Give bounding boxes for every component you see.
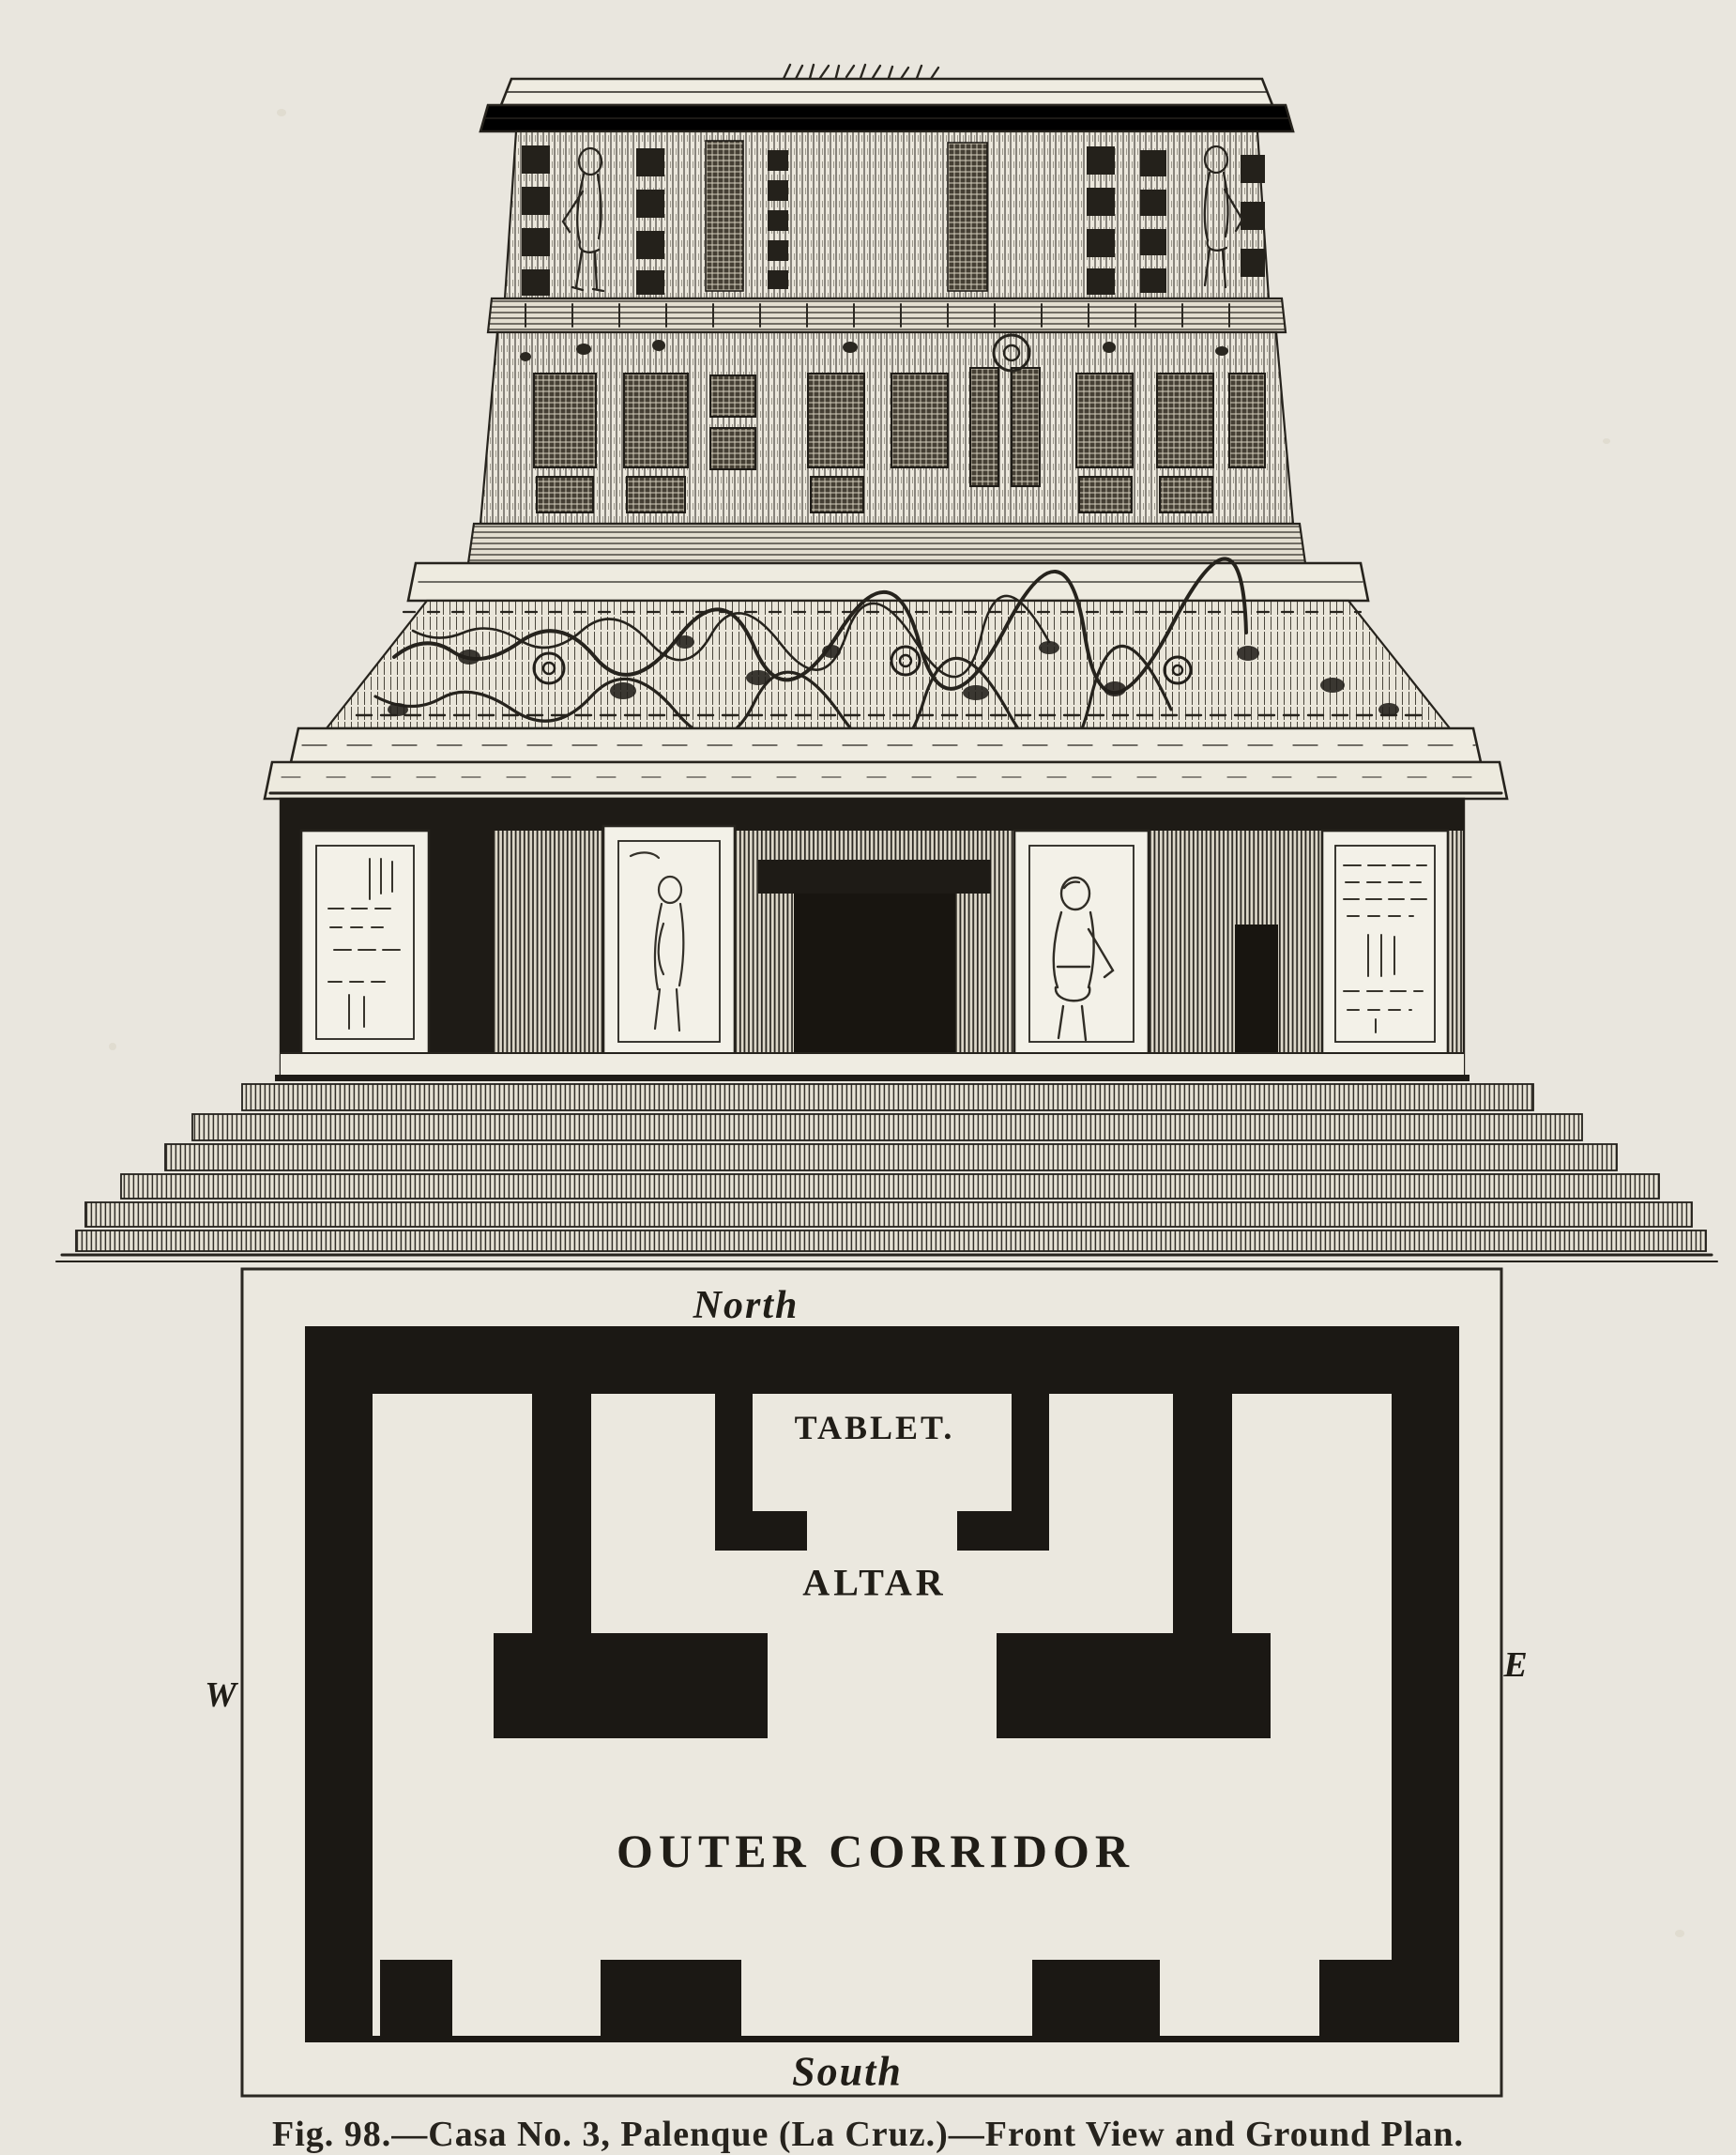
- wall-base-line: [275, 1075, 1470, 1081]
- plan-east-partition-pier: [997, 1633, 1271, 1738]
- tablet-room-label: TABLET.: [795, 1408, 955, 1447]
- side-doorway: [1235, 925, 1278, 1059]
- plan-north-wall: [305, 1326, 1459, 1394]
- frieze-relief: [327, 601, 1450, 728]
- wall-base-course: [281, 1053, 1464, 1075]
- plan-south-pier-1: [380, 1960, 452, 2042]
- ground-plan-drawing: [242, 1269, 1501, 2096]
- roof-comb-band-cornice: [488, 298, 1286, 332]
- wall-black-pier: [429, 799, 494, 1062]
- mid-cornice-hatch-band: [468, 524, 1305, 563]
- plan-sanctuary-right-foot: [957, 1511, 1049, 1551]
- compass-west-label: W: [205, 1674, 238, 1716]
- engraving-plate: [0, 0, 1736, 2138]
- roof-comb-relief-slab-right: [948, 143, 987, 291]
- plan-west-partition-pier: [494, 1633, 768, 1738]
- temple-front-wall: [275, 799, 1470, 1081]
- wall-panel-figure-right: [1014, 831, 1149, 1059]
- compass-south-label: South: [792, 2048, 903, 2096]
- plan-south-pier-4: [1319, 1960, 1392, 2042]
- plan-sanctuary-right-wall: [1012, 1394, 1049, 1513]
- plan-east-wall: [1392, 1326, 1459, 2042]
- plan-sanctuary-left-wall: [715, 1394, 753, 1513]
- wall-panel-figure-left: [603, 826, 735, 1059]
- plan-south-pier-3: [1032, 1960, 1160, 2042]
- wall-panel-glyphs-right: [1322, 831, 1448, 1059]
- wall-panel-glyphs-left: [301, 831, 429, 1057]
- outer-corridor-label: OUTER CORRIDOR: [617, 1824, 1134, 1878]
- plan-west-wall: [305, 1326, 373, 2042]
- pyramid-steps: [76, 1084, 1706, 1251]
- plan-sanctuary-left-foot: [715, 1511, 807, 1551]
- plan-south-sill: [305, 2036, 1459, 2042]
- figure-caption: Fig. 98.—Casa No. 3, Palenque (La Cruz.)…: [272, 2114, 1464, 2155]
- plan-east-partition: [1173, 1394, 1232, 1638]
- compass-north-label: North: [693, 1283, 799, 1328]
- roof-comb-relief-slab-left: [706, 141, 743, 291]
- plan-west-partition: [532, 1394, 591, 1638]
- compass-east-label: E: [1503, 1644, 1529, 1686]
- altar-label: ALTAR: [802, 1561, 946, 1605]
- plan-south-pier-2: [601, 1960, 741, 2042]
